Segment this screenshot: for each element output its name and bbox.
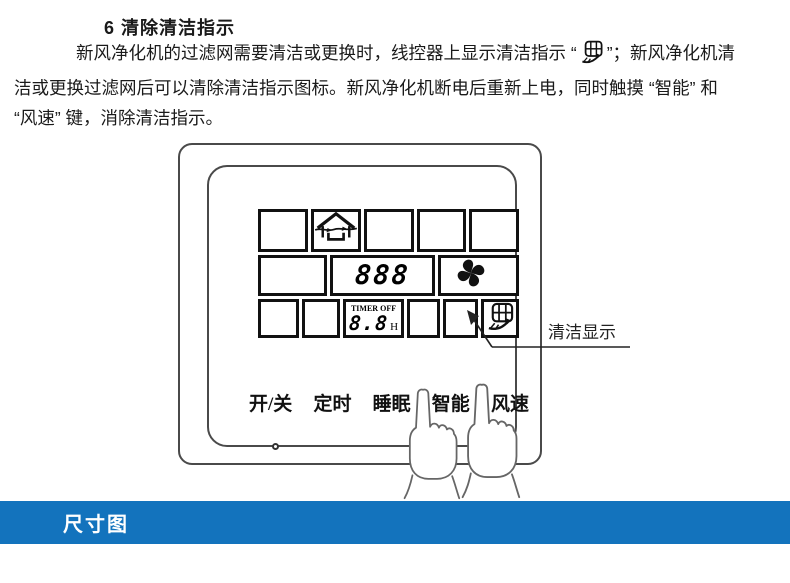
banner-title: 尺寸图 bbox=[63, 508, 129, 537]
instruction-paragraph: 新风净化机的过滤网需要清洁或更换时，线控器上显示清洁指示 “”；新风净化机清 洁… bbox=[14, 38, 780, 133]
lcd-cell-blank bbox=[258, 209, 308, 252]
lcd-cell-blank bbox=[302, 299, 340, 338]
pointing-hand-smart-icon bbox=[400, 388, 462, 500]
lcd-number-value: 888 bbox=[354, 260, 411, 291]
section-banner: 尺寸图 bbox=[0, 501, 790, 544]
lcd-cell-blank bbox=[258, 255, 327, 296]
fan-icon bbox=[455, 257, 487, 294]
lcd-cell-blank bbox=[417, 209, 467, 252]
lcd-cell-blank bbox=[364, 209, 414, 252]
paragraph-line-2: 洁或更换过滤网后可以清除清洁指示图标。新风净化机断电后重新上电，同时触摸 “智能… bbox=[14, 73, 780, 103]
lcd-cell-blank bbox=[407, 299, 440, 338]
paragraph-line-3: “风速” 键，消除清洁指示。 bbox=[14, 103, 780, 133]
pointing-hand-fan-speed-icon bbox=[458, 383, 522, 499]
callout-arrow bbox=[458, 306, 636, 354]
lcd-cell-fresh-air bbox=[311, 209, 361, 252]
manual-page: 6 清除清洁指示 新风净化机的过滤网需要清洁或更换时，线控器上显示清洁指示 “”… bbox=[0, 0, 790, 583]
lcd-cell-number: 888 bbox=[330, 255, 435, 296]
paragraph-line-1: 新风净化机的过滤网需要清洁或更换时，线控器上显示清洁指示 “”；新风净化机清 bbox=[14, 38, 780, 73]
button-power: 开/关 bbox=[249, 389, 292, 416]
lcd-cell-blank bbox=[469, 209, 519, 252]
timer-value: 8.8 bbox=[348, 313, 389, 333]
indicator-led bbox=[272, 443, 279, 450]
timer-unit: H bbox=[390, 322, 398, 333]
timer-value-row: 8.8 H bbox=[349, 313, 398, 333]
fresh-air-house-icon bbox=[314, 210, 358, 251]
lcd-row-2: 888 bbox=[258, 255, 519, 296]
lcd-cell-timer: TIMER OFF 8.8 H bbox=[343, 299, 404, 338]
button-timer: 定时 bbox=[313, 389, 351, 416]
lcd-cell-fan bbox=[438, 255, 519, 296]
lcd-cell-blank bbox=[258, 299, 299, 338]
section-heading: 6 清除清洁指示 bbox=[104, 14, 235, 40]
lcd-row-1 bbox=[258, 209, 519, 252]
clean-filter-icon bbox=[579, 40, 605, 73]
